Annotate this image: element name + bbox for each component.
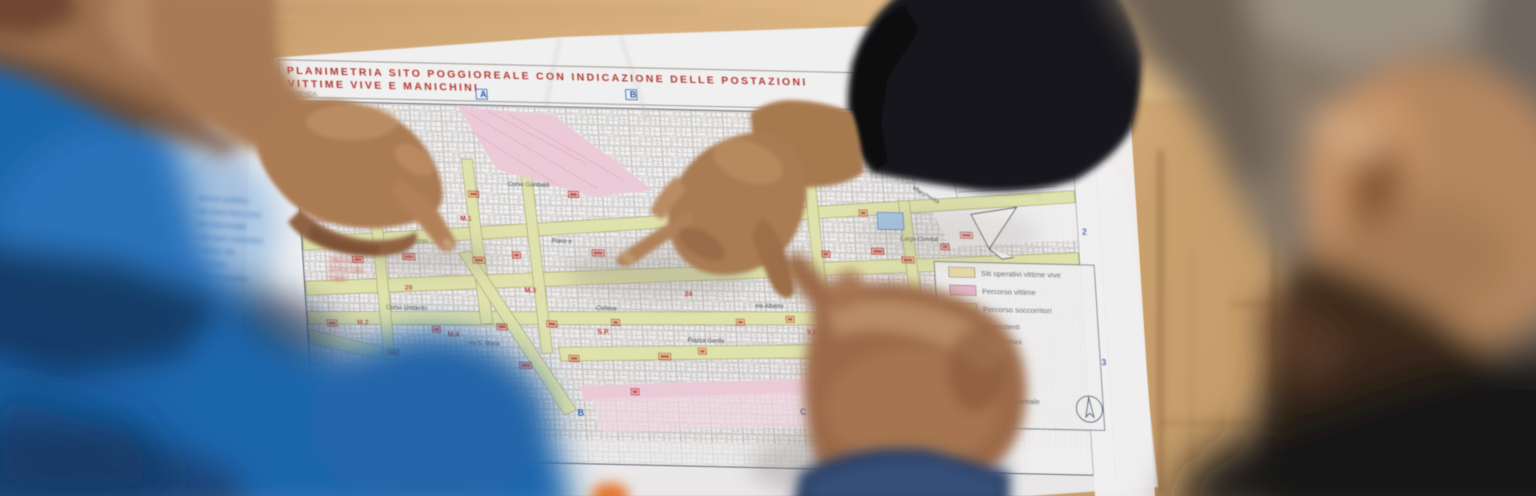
- svg-text:29: 29: [405, 285, 413, 292]
- svg-text:B: B: [577, 408, 585, 418]
- svg-text:via Alberto: via Alberto: [755, 304, 784, 311]
- svg-text:Piazza Garda: Piazza Garda: [688, 338, 725, 345]
- svg-text:B: B: [630, 90, 638, 100]
- svg-text:Corso Garibaldi: Corso Garibaldi: [508, 182, 551, 189]
- svg-text:Percorso soccorritori: Percorso soccorritori: [983, 305, 1053, 316]
- svg-text:M.1: M.1: [460, 216, 472, 223]
- svg-text:M.3: M.3: [525, 287, 537, 294]
- svg-text:Corso Umberto: Corso Umberto: [386, 305, 428, 312]
- svg-text:S.P.: S.P.: [597, 329, 610, 336]
- svg-text:Siti operativi vittime vive: Siti operativi vittime vive: [981, 269, 1061, 280]
- svg-text:Piano e: Piano e: [551, 239, 572, 245]
- svg-text:(roga): (roga): [328, 274, 347, 282]
- svg-text:Percorso vittime: Percorso vittime: [982, 287, 1036, 297]
- svg-text:2: 2: [1082, 227, 1088, 237]
- svg-text:3: 3: [1101, 357, 1107, 367]
- svg-text:Cortese: Cortese: [596, 306, 618, 312]
- svg-text:A: A: [480, 89, 488, 99]
